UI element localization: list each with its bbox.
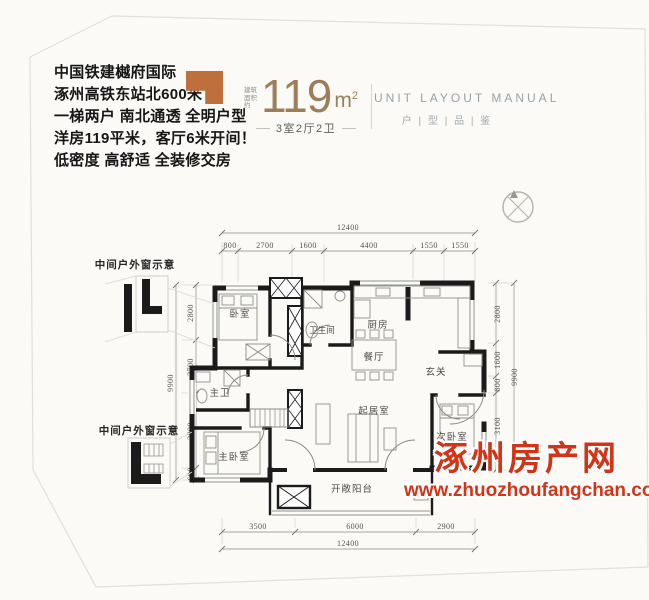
room-label-balcony: 开敞阳台 <box>331 483 373 495</box>
room-label-bathroom: 卫生间 <box>309 325 335 335</box>
layout-summary: 3室2厅2卫 <box>236 120 376 136</box>
brochure-page: 中国铁建樾府国际 涿州高铁东站北600米 一梯两户 南北通透 全明户型 洋房11… <box>0 0 649 600</box>
dim-top-total: 12400 <box>337 223 359 232</box>
room-label-master-bedroom: 主卧室 <box>218 451 250 463</box>
decorative-line <box>342 128 356 129</box>
area-unit: m2 <box>334 89 358 113</box>
dim-right-seg: 1600 <box>493 351 502 369</box>
area-prefix: 建筑面积约 <box>244 87 259 110</box>
area-value: 119 <box>261 72 331 120</box>
dim-right-seg: 800 <box>493 378 502 391</box>
compass-icon <box>503 190 533 222</box>
dim-top-seg: 4400 <box>360 241 378 250</box>
dim-left-seg: 2800 <box>186 304 195 322</box>
manual-header: UNIT LAYOUT MANUAL 户 | 型 | 品 | 鉴 <box>374 91 520 127</box>
dim-left-total: 9900 <box>166 374 175 392</box>
marketing-line: 涿州高铁东站北600米 <box>54 84 256 106</box>
layout-text: 3室2厅2卫 <box>276 120 336 136</box>
marketing-line: 一梯两户 南北通透 全明户型 <box>54 106 256 128</box>
elevator-shaft-bottom <box>278 486 310 508</box>
wardrobe <box>246 344 270 360</box>
vertical-divider <box>371 84 372 129</box>
room-label-master-bath: 主卫 <box>209 387 230 399</box>
watermark-site-url: www.zhuozhoufangchan.com <box>404 480 649 502</box>
room-label-bedroom: 卧室 <box>229 308 250 320</box>
watermark-site-name: 涿州房产网 <box>404 441 649 477</box>
marketing-line: 低密度 高舒适 全装修交房 <box>54 150 256 172</box>
elevator-shaft-top <box>270 278 302 298</box>
decorative-line <box>256 128 270 129</box>
manual-title-en: UNIT LAYOUT MANUAL <box>374 91 520 105</box>
dim-top-seg: 1600 <box>299 241 317 250</box>
room-label-foyer: 玄关 <box>425 366 446 378</box>
marketing-text-block: 中国铁建樾府国际 涿州高铁东站北600米 一梯两户 南北通透 全明户型 洋房11… <box>54 62 256 172</box>
marketing-line: 中国铁建樾府国际 <box>54 62 256 84</box>
dim-bottom-seg: 3500 <box>249 522 267 531</box>
dim-top-seg: 800 <box>223 241 236 250</box>
dim-right-total: 9900 <box>510 368 519 386</box>
dim-right-seg: 3100 <box>493 417 502 435</box>
area-badge: 建筑面积约 119 m2 <box>244 72 358 120</box>
exterior-window-sketch-top: 中间户外窗示意 <box>95 258 215 348</box>
area-unit-sup: 2 <box>352 90 358 102</box>
dim-top-seg: 2700 <box>256 241 274 250</box>
dim-bottom-total: 12400 <box>337 539 359 548</box>
marketing-line: 洋房119平米，客厅6米开间！ <box>54 128 256 150</box>
room-label-living: 起居室 <box>358 405 390 417</box>
dim-top-seg: 1550 <box>420 241 438 250</box>
area-unit-letter: m <box>334 89 352 112</box>
sketch-top-label: 中间户外窗示意 <box>95 258 176 271</box>
dim-bottom-seg: 2900 <box>437 522 455 531</box>
stairs <box>250 409 288 427</box>
dim-top-seg: 1550 <box>451 241 469 250</box>
watermark: 涿州房产网 www.zhuozhoufangchan.com <box>404 441 649 502</box>
sketch-bottom-label: 中间户外窗示意 <box>99 424 180 437</box>
room-label-dining: 餐厅 <box>363 351 384 363</box>
dim-bottom-seg: 6000 <box>346 522 364 531</box>
dim-right-seg: 2800 <box>493 305 502 323</box>
manual-title-cn: 户 | 型 | 品 | 鉴 <box>374 112 520 127</box>
room-label-kitchen: 厨房 <box>367 319 388 331</box>
